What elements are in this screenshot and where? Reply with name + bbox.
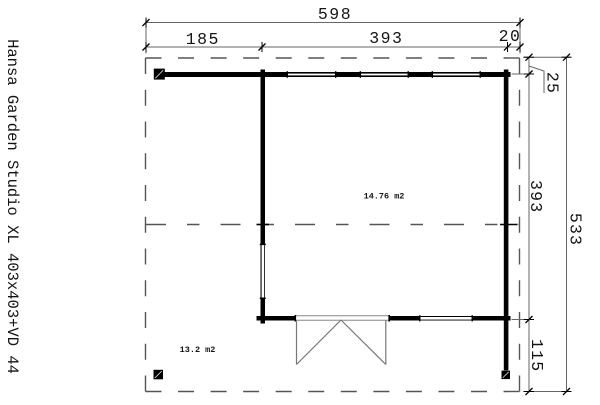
svg-text:393: 393 [369, 29, 403, 48]
svg-text:Hansa Garden Studio XL 403x403: Hansa Garden Studio XL 403x403+VD 44 [3, 39, 21, 374]
svg-text:598: 598 [318, 5, 352, 24]
svg-text:13.2 m2: 13.2 m2 [180, 345, 216, 355]
svg-text:115: 115 [527, 339, 546, 372]
svg-text:25: 25 [543, 72, 562, 94]
svg-text:533: 533 [565, 213, 584, 246]
svg-text:393: 393 [526, 180, 545, 213]
svg-text:14.76 m2: 14.76 m2 [364, 192, 405, 202]
svg-text:20: 20 [499, 27, 522, 46]
svg-text:185: 185 [186, 30, 220, 49]
